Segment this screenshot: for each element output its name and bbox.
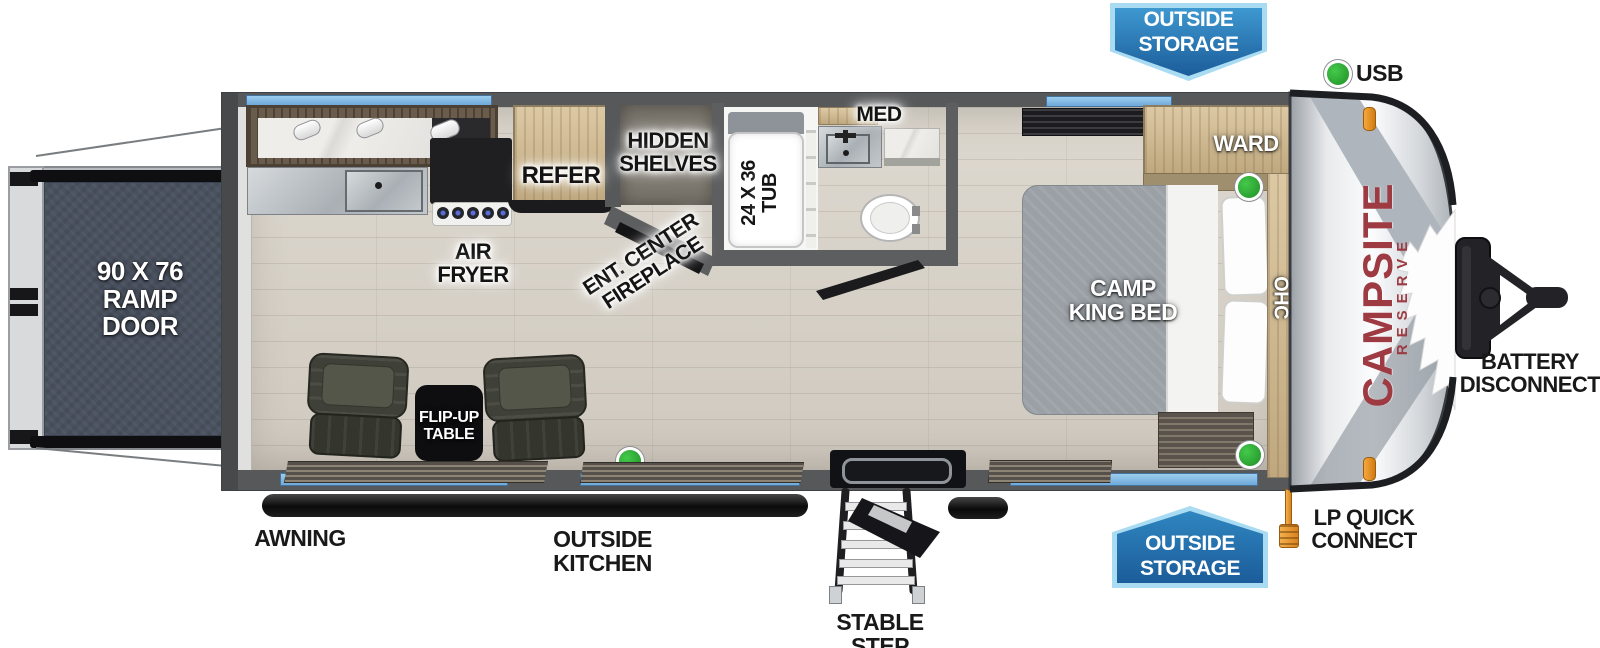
air-fryer-line: FRYER <box>428 263 518 286</box>
bathroom-door <box>816 260 925 300</box>
battery-line: DISCONNECT <box>1448 373 1600 396</box>
brand-series: RESERVE <box>1394 212 1412 378</box>
tub-line: TUB <box>760 138 781 248</box>
entry-door-panel <box>848 498 940 558</box>
floorplan-diagram: CAMPSITE RESERVE 90 X 76 RAMP DOOR AIR F… <box>0 0 1600 648</box>
usb-legend-dot <box>1327 63 1349 85</box>
refer-label: REFER <box>513 163 609 188</box>
hidden-shelves-label: HIDDEN SHELVES <box>613 129 723 175</box>
lp-quick-connect-label: LP QUICK CONNECT <box>1304 506 1424 553</box>
flip-up-table-label: FLIP-UP TABLE <box>415 410 483 444</box>
flip-up-line: FLIP-UP <box>415 410 483 427</box>
usb-legend-label: USB <box>1356 61 1416 85</box>
hidden-shelves-line: SHELVES <box>613 152 723 175</box>
ramp-door-line: 90 X 76 <box>64 258 216 286</box>
outside-kitchen-line: OUTSIDE <box>540 527 665 551</box>
flip-up-line: TABLE <box>415 427 483 444</box>
battery-disconnect-label: BATTERY DISCONNECT <box>1448 350 1600 397</box>
badge-line: OUTSIDE <box>1144 8 1234 33</box>
hitch-bumper-highlight <box>1462 246 1471 350</box>
tub-line: 24 X 36 <box>739 138 760 248</box>
lp-line: CONNECT <box>1304 529 1424 552</box>
awning-label: AWNING <box>245 526 355 550</box>
badge-line: OUTSIDE <box>1145 532 1235 557</box>
marker-light-icon <box>1363 457 1376 481</box>
tub-label: 24 X 36 TUB <box>739 138 781 248</box>
bed-line: KING BED <box>1058 300 1188 324</box>
marker-light-icon <box>1363 107 1376 131</box>
ward-label: WARD <box>1203 132 1289 155</box>
bed-line: CAMP <box>1058 276 1188 300</box>
hitch-coupler <box>1526 287 1568 308</box>
outside-kitchen-label: OUTSIDE KITCHEN <box>540 527 665 576</box>
hidden-shelves-line: HIDDEN <box>613 129 723 152</box>
battery-line: BATTERY <box>1448 350 1600 373</box>
lp-line: LP QUICK <box>1304 506 1424 529</box>
air-fryer-label: AIR FRYER <box>428 240 518 286</box>
hitch-jack-icon <box>1480 288 1500 308</box>
ramp-door-line: DOOR <box>64 313 216 341</box>
outside-kitchen-line: KITCHEN <box>540 551 665 575</box>
air-fryer-line: AIR <box>428 240 518 263</box>
ohc-label: OHC <box>1269 263 1290 333</box>
med-label: MED <box>845 104 913 126</box>
ramp-door-line: RAMP <box>64 286 216 314</box>
ramp-door-label: 90 X 76 RAMP DOOR <box>64 258 216 341</box>
badge-line: STORAGE <box>1139 33 1239 58</box>
stable-step-label: STABLE STEP <box>805 610 955 648</box>
camp-king-bed-label: CAMP KING BED <box>1058 276 1188 325</box>
badge-line: STORAGE <box>1140 557 1240 582</box>
